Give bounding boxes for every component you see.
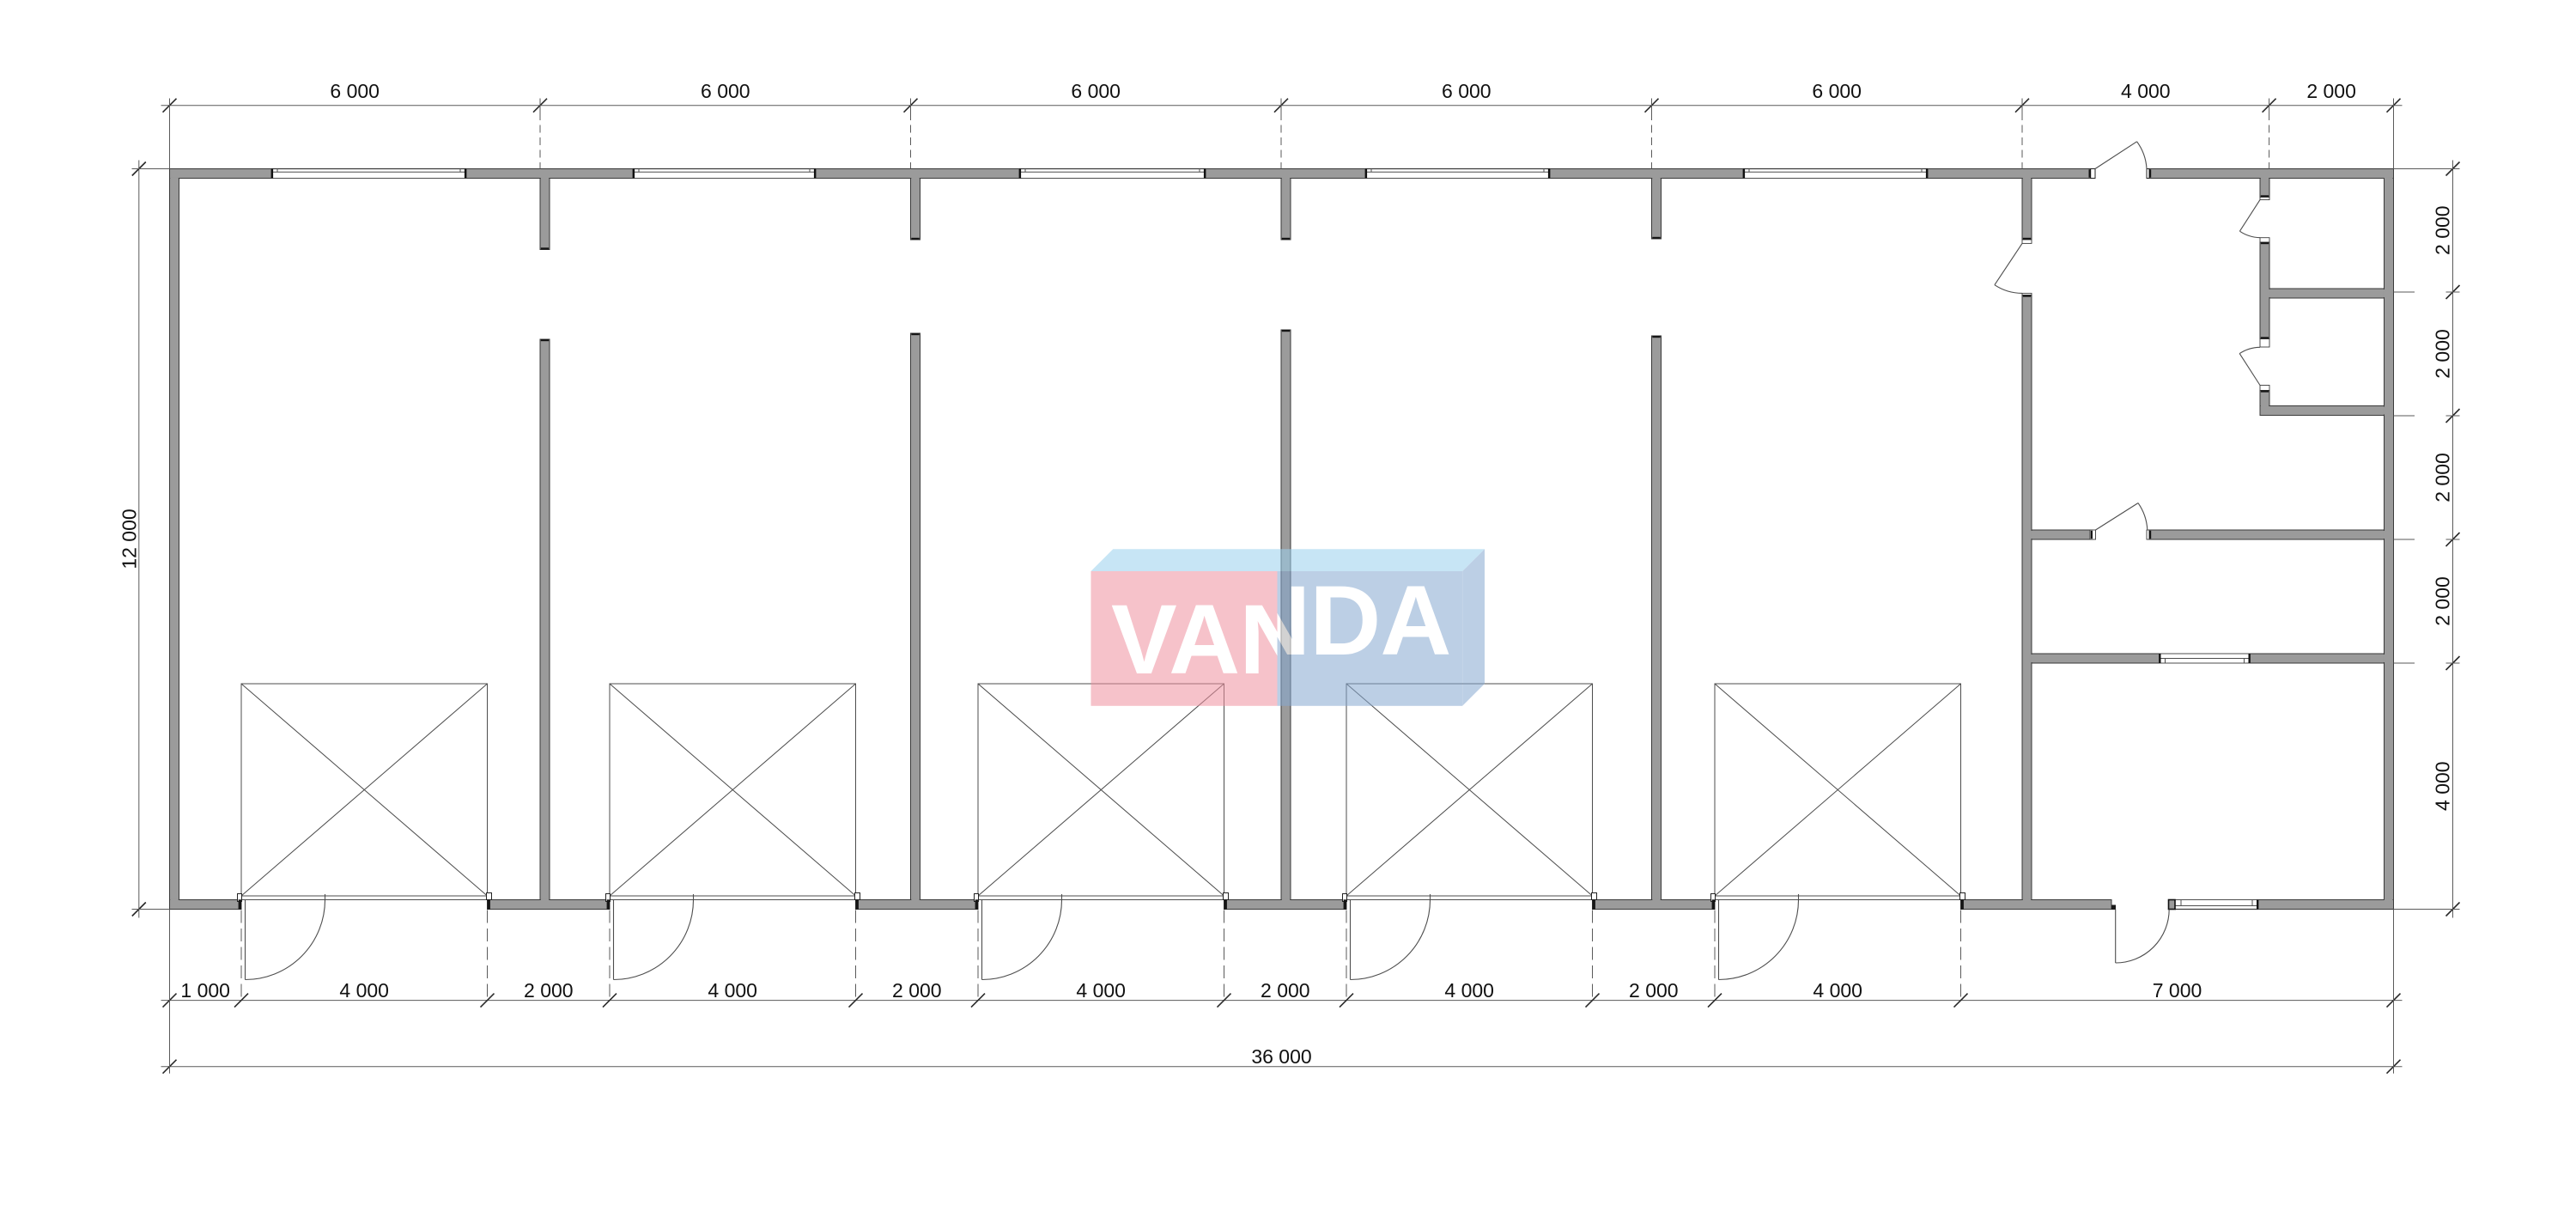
svg-text:4 000: 4 000 xyxy=(1813,979,1862,1002)
svg-text:4 000: 4 000 xyxy=(1076,979,1126,1002)
svg-text:4 000: 4 000 xyxy=(1444,979,1494,1002)
svg-text:2 000: 2 000 xyxy=(2432,453,2454,502)
svg-text:7 000: 7 000 xyxy=(2153,979,2202,1002)
svg-text:4 000: 4 000 xyxy=(2121,80,2171,102)
svg-text:4 000: 4 000 xyxy=(339,979,389,1002)
svg-text:2 000: 2 000 xyxy=(2432,205,2454,255)
svg-text:2 000: 2 000 xyxy=(892,979,942,1002)
svg-text:2 000: 2 000 xyxy=(2432,329,2454,379)
svg-text:2 000: 2 000 xyxy=(1629,979,1679,1002)
svg-text:6 000: 6 000 xyxy=(1812,80,1862,102)
svg-text:36 000: 36 000 xyxy=(1251,1045,1311,1068)
svg-text:1 000: 1 000 xyxy=(180,979,230,1002)
svg-text:12 000: 12 000 xyxy=(118,508,141,569)
svg-text:2 000: 2 000 xyxy=(2432,576,2454,626)
svg-text:4 000: 4 000 xyxy=(2432,761,2454,811)
svg-text:6 000: 6 000 xyxy=(1442,80,1492,102)
svg-text:2 000: 2 000 xyxy=(1261,979,1310,1002)
svg-text:4 000: 4 000 xyxy=(708,979,757,1002)
svg-text:6 000: 6 000 xyxy=(1071,80,1121,102)
svg-text:6 000: 6 000 xyxy=(701,80,750,102)
svg-text:6 000: 6 000 xyxy=(330,80,380,102)
svg-text:2 000: 2 000 xyxy=(524,979,574,1002)
svg-text:2 000: 2 000 xyxy=(2306,80,2356,102)
